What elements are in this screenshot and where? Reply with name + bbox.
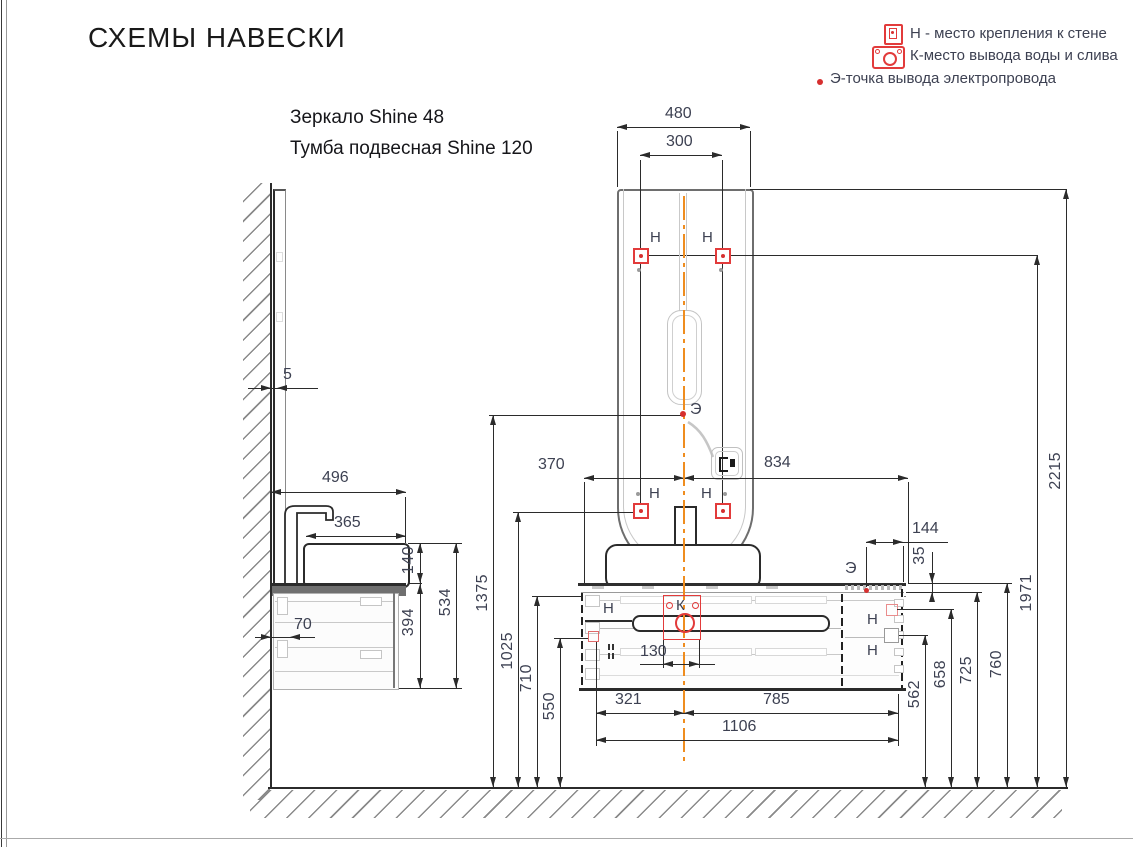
arrow <box>684 475 694 481</box>
legend-wall-mount-icon <box>884 24 903 45</box>
ext-line <box>640 160 641 510</box>
dim-line-1106 <box>596 740 898 741</box>
mount-label: Н <box>867 642 878 659</box>
dim-480: 480 <box>665 105 692 123</box>
pilot-dot <box>636 492 640 496</box>
arrow <box>271 489 281 495</box>
countertop-texture <box>845 585 903 590</box>
arrow <box>1034 777 1040 787</box>
arrow <box>740 124 750 130</box>
arrow <box>689 661 699 667</box>
page-border-left-inner <box>6 0 7 847</box>
ext-line <box>596 642 597 746</box>
cabinet-side-rail <box>360 650 382 659</box>
arrow <box>453 678 459 688</box>
drawer-slide <box>755 596 827 604</box>
arrow <box>712 152 722 158</box>
dim-1375: 1375 <box>474 574 492 612</box>
arrow <box>929 573 935 583</box>
ext-line <box>908 482 909 583</box>
ext-line <box>903 546 904 582</box>
dim-line-365 <box>306 536 406 537</box>
cabinet-side-detail <box>275 622 395 623</box>
mount-label: Н <box>603 600 614 617</box>
dim-line-496 <box>271 492 406 493</box>
floor-line <box>268 787 1068 789</box>
arrow <box>490 777 496 787</box>
dim-496: 496 <box>322 469 349 487</box>
mount-point-lower-left <box>633 503 649 519</box>
mount-point-upper-right <box>715 248 731 264</box>
electric-label-countertop: Э <box>845 560 857 578</box>
legend-water-outlet-icon-dot-left <box>875 49 880 54</box>
arrow <box>893 539 903 545</box>
arrow <box>596 710 606 716</box>
ext-line <box>866 547 867 587</box>
mount-point-cabinet-left <box>588 631 599 642</box>
electric-label-mirror: Э <box>690 401 702 419</box>
legend-water-outlet-icon <box>872 46 905 69</box>
dim-line-300 <box>640 155 722 156</box>
legend-electric-icon <box>817 79 823 85</box>
dim-2215: 2215 <box>1047 452 1065 490</box>
dim-370: 370 <box>538 456 565 474</box>
page-border-bottom <box>0 838 1133 839</box>
dim-144: 144 <box>912 520 939 538</box>
ext-line-e-level <box>489 415 682 416</box>
switch-plug-icon <box>730 459 735 467</box>
legend-water-outlet-text: К-место вывода воды и слива <box>910 47 1118 64</box>
product-mirror-label: Зеркало Shine 48 <box>290 107 444 129</box>
led-strip-line <box>686 193 687 311</box>
arrow <box>866 539 876 545</box>
arrow <box>1034 255 1040 265</box>
page-title: СХЕМЫ НАВЕСКИ <box>88 22 346 54</box>
arrow <box>396 533 406 539</box>
dim-365: 365 <box>334 514 361 532</box>
arrow <box>277 385 287 391</box>
arrow <box>888 737 898 743</box>
dim-line-370-834 <box>584 478 908 479</box>
cabinet-side <box>273 593 399 690</box>
water-outlet-dot-left <box>666 602 673 609</box>
arrow <box>515 512 521 522</box>
arrow <box>1004 583 1010 593</box>
page-border-left-outer <box>1 0 2 847</box>
ext-line <box>906 592 982 593</box>
countertop-detail <box>766 586 778 589</box>
dim-line-1025 <box>518 512 519 787</box>
arrow <box>929 592 935 602</box>
dim-70: 70 <box>294 616 312 634</box>
handle-groove-line <box>585 620 632 622</box>
arrow <box>888 710 898 716</box>
dim-300: 300 <box>666 133 693 151</box>
arrow <box>640 152 650 158</box>
mount-dot <box>721 509 725 513</box>
countertop-detail <box>706 586 718 589</box>
dim-785: 785 <box>763 691 790 709</box>
electric-point-countertop <box>864 588 869 593</box>
arrow <box>1063 777 1069 787</box>
mount-label: Н <box>867 611 878 628</box>
dim-1971: 1971 <box>1018 574 1036 612</box>
arrow <box>417 584 423 594</box>
mount-label: Н <box>701 485 712 502</box>
drawer-rail <box>585 595 600 607</box>
arrow <box>1004 777 1010 787</box>
dim-562: 562 <box>906 680 924 708</box>
dim-1106: 1106 <box>722 718 756 736</box>
arrow <box>515 777 521 787</box>
cabinet-side-rail <box>360 597 382 606</box>
mirror-side-clip <box>276 312 283 322</box>
mount-label: Н <box>702 229 713 246</box>
legend-electric-text: Э-точка вывода электропровода <box>830 70 1056 87</box>
cabinet-side-rail <box>277 640 288 658</box>
legend-wall-mount-icon-dot <box>891 31 894 34</box>
water-outlet-dot-right <box>692 602 699 609</box>
arrow <box>684 710 694 716</box>
dim-gap5: 5 <box>283 366 292 384</box>
countertop-detail <box>592 586 604 589</box>
cabinet-front-left-edge <box>581 593 583 689</box>
wall-hatching <box>243 183 270 800</box>
floor-hatching <box>250 790 1062 818</box>
dowel-mark <box>608 644 610 650</box>
product-cabinet-label: Тумба подвесная Shine 120 <box>290 138 533 160</box>
mount-dot <box>639 254 643 258</box>
arrow <box>674 710 684 716</box>
dim-line-1971 <box>1037 255 1038 787</box>
dim-760: 760 <box>988 650 1006 678</box>
ext-line <box>399 688 462 689</box>
arrow <box>490 415 496 425</box>
dim-1025: 1025 <box>499 632 517 670</box>
cabinet-side-rail <box>277 597 288 615</box>
arrow <box>557 777 563 787</box>
ext-line-upper-mounts <box>633 255 1037 256</box>
dim-35: 35 <box>911 546 929 565</box>
drawer-slide <box>755 648 827 656</box>
centerline <box>683 196 685 765</box>
arrow <box>617 124 627 130</box>
dim-line-760 <box>1007 583 1008 787</box>
arrow <box>898 475 908 481</box>
dim-658: 658 <box>932 660 950 688</box>
arrow <box>557 638 563 648</box>
drawing-sheet: СХЕМЫ НАВЕСКИ Зеркало Shine 48 Тумба под… <box>0 0 1133 847</box>
arrow <box>417 678 423 688</box>
dim-534: 534 <box>437 588 455 616</box>
mount-rail-clip <box>894 615 904 623</box>
arrow <box>534 777 540 787</box>
pilot-dot <box>637 268 641 272</box>
ext-line <box>584 482 585 583</box>
cabinet-side-detail <box>275 647 395 648</box>
mount-rail-clip <box>894 648 904 656</box>
legend-wall-mount-text: Н - место крепления к стене <box>910 25 1107 42</box>
drawer-rail <box>585 649 600 661</box>
arrow <box>663 661 673 667</box>
mount-rail-clip <box>894 665 904 673</box>
dim-line-130 <box>640 664 715 665</box>
pilot-dot <box>719 268 723 272</box>
legend-water-outlet-icon-dot-right <box>897 49 902 54</box>
mount-label: Н <box>649 485 660 502</box>
mount-dot <box>721 254 725 258</box>
water-outlet-circle <box>675 613 695 633</box>
arrow <box>922 635 928 645</box>
dim-line-562 <box>925 635 926 787</box>
pilot-dot <box>723 492 727 496</box>
mount-point-cabinet-right-upper <box>886 604 898 616</box>
dim-140: 140 <box>400 546 418 574</box>
arrow <box>948 609 954 619</box>
cabinet-handle <box>632 615 830 632</box>
drawer-rail <box>585 668 600 680</box>
arrow <box>1063 189 1069 199</box>
arrow <box>596 737 606 743</box>
cabinet-side-detail <box>275 671 395 672</box>
electric-point-mirror <box>680 411 686 417</box>
dim-line-2215 <box>1066 189 1067 787</box>
led-strip-line <box>679 193 680 311</box>
cabinet-front-body <box>581 592 904 691</box>
dim-line-658 <box>951 609 952 787</box>
ext-line <box>897 609 954 610</box>
mount-point-upper-left <box>633 248 649 264</box>
dim-line-1375 <box>493 415 494 787</box>
arrow <box>396 489 406 495</box>
dim-line-140-394 <box>420 543 421 688</box>
arrow <box>290 634 300 640</box>
ext-line <box>750 131 751 187</box>
arrow <box>922 777 928 787</box>
mirror-side-clip <box>276 252 283 262</box>
dim-710: 710 <box>518 664 536 692</box>
dim-line-480 <box>617 127 750 128</box>
dowel-mark <box>608 653 610 659</box>
dim-line-710 <box>537 596 538 787</box>
ext-line-lower-mounts <box>513 512 640 513</box>
mount-dot <box>639 509 643 513</box>
dowel-mark <box>612 653 614 659</box>
mount-point-lower-right <box>715 503 731 519</box>
arrow <box>261 385 271 391</box>
arrow <box>974 777 980 787</box>
water-outlet-label: К <box>676 597 685 614</box>
dim-line-534 <box>456 543 457 688</box>
ext-line-mirror-top <box>750 189 1067 190</box>
cabinet-side-front-edge <box>393 593 395 688</box>
arrow <box>417 573 423 583</box>
ext-line <box>898 694 899 746</box>
dowel-mark <box>612 644 614 650</box>
dim-834: 834 <box>764 454 791 472</box>
dim-line-550 <box>560 638 561 787</box>
dim-line-144 <box>866 542 948 543</box>
mount-label: Н <box>650 229 661 246</box>
arrow <box>261 634 271 640</box>
arrow <box>974 592 980 602</box>
dim-line-321-785 <box>596 713 898 714</box>
switch-contact-icon <box>719 457 728 472</box>
countertop-detail <box>642 586 654 589</box>
cabinet-section-divider <box>841 594 843 687</box>
dim-550: 550 <box>541 692 559 720</box>
wall-line <box>270 183 272 787</box>
arrow <box>948 777 954 787</box>
dim-321: 321 <box>615 691 642 709</box>
arrow <box>584 475 594 481</box>
dim-725: 725 <box>958 656 976 684</box>
mount-point-cabinet-right-lower <box>884 628 899 643</box>
arrow <box>453 543 459 553</box>
dim-130: 130 <box>640 643 667 661</box>
ext-line <box>908 583 1012 584</box>
arrow <box>306 533 316 539</box>
basin-side <box>303 543 410 588</box>
legend-water-outlet-icon-circle <box>883 52 897 66</box>
arrow <box>534 596 540 606</box>
dim-line-725 <box>977 592 978 787</box>
ext-line <box>617 131 618 187</box>
cabinet-detail-line <box>585 675 899 676</box>
dim-394: 394 <box>400 608 418 636</box>
